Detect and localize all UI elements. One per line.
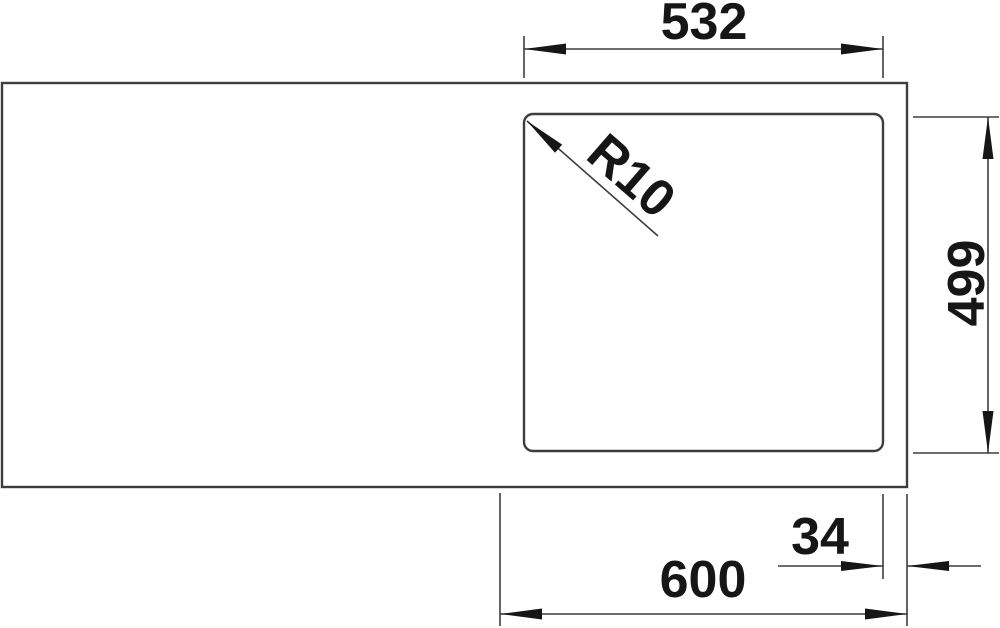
dim-label-bowl-width: 532 (661, 0, 748, 51)
technical-drawing-canvas: 532 R10 499 34 600 (0, 0, 1000, 628)
sink-dimension-drawing: 532 R10 499 34 600 (0, 0, 1000, 628)
dim-label-bowl-depth: 499 (938, 240, 996, 327)
dim-label-right-offset: 34 (791, 508, 849, 566)
dim-label-cabinet-width: 600 (660, 551, 747, 609)
